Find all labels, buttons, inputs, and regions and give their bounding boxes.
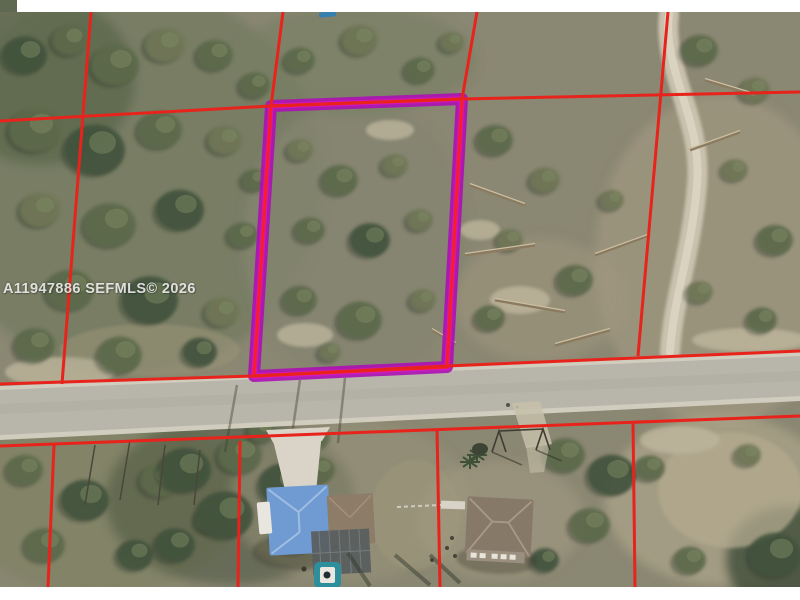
mls-watermark: A11947886 SEFMLS© 2026: [3, 281, 196, 297]
frame-band-bottom: [0, 587, 800, 600]
aerial-photo: [0, 0, 800, 600]
gray-roof-house: [456, 496, 540, 576]
frame-band-top: [0, 0, 800, 12]
listing-photo: A11947886 SEFMLS© 2026: [0, 0, 800, 600]
south-lot-line-4: [633, 421, 635, 587]
photo-sliver: [0, 0, 17, 12]
south-lot-line-2: [238, 441, 240, 587]
bush: [472, 443, 488, 455]
white-trailer: [257, 501, 273, 534]
pool: [314, 562, 341, 588]
